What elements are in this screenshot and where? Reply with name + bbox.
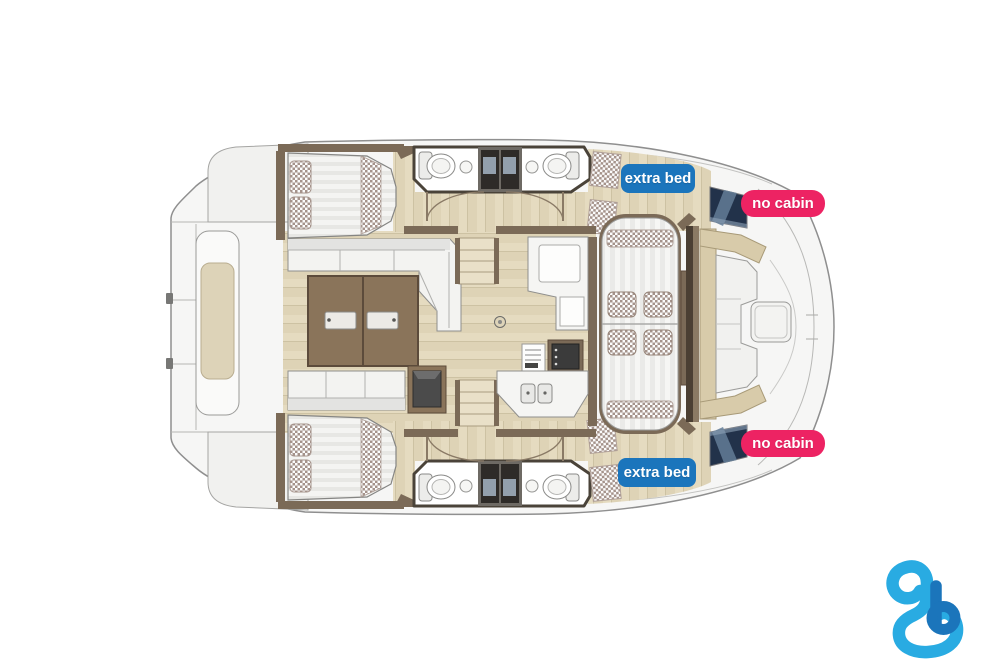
cockpit-table: [751, 302, 791, 342]
cleat: [166, 293, 173, 304]
catamaran-floorplan: [0, 0, 984, 663]
instrument-panel: [522, 344, 545, 371]
no-cabin-badge-bottom: no cabin: [741, 430, 825, 457]
extra-bed-badge-top: extra bed: [621, 164, 695, 193]
extra-bed-badge-bottom: extra bed: [618, 458, 696, 487]
saloon-bench-bottom: [288, 371, 405, 410]
boataround-b-logo: [880, 556, 984, 660]
cleat: [166, 358, 173, 369]
boat-floorplan-page: extra bed no cabin no cabin extra bed: [0, 0, 984, 663]
sun-pad: [196, 231, 239, 415]
companionway-steps-bottom: [455, 380, 499, 426]
tv-cabinet: [408, 366, 446, 413]
no-cabin-badge-top: no cabin: [741, 190, 825, 217]
companionway-steps-top: [455, 238, 499, 284]
stove: [548, 340, 583, 373]
cockpit-bench-back: [700, 229, 716, 419]
saloon-table: [308, 276, 418, 366]
